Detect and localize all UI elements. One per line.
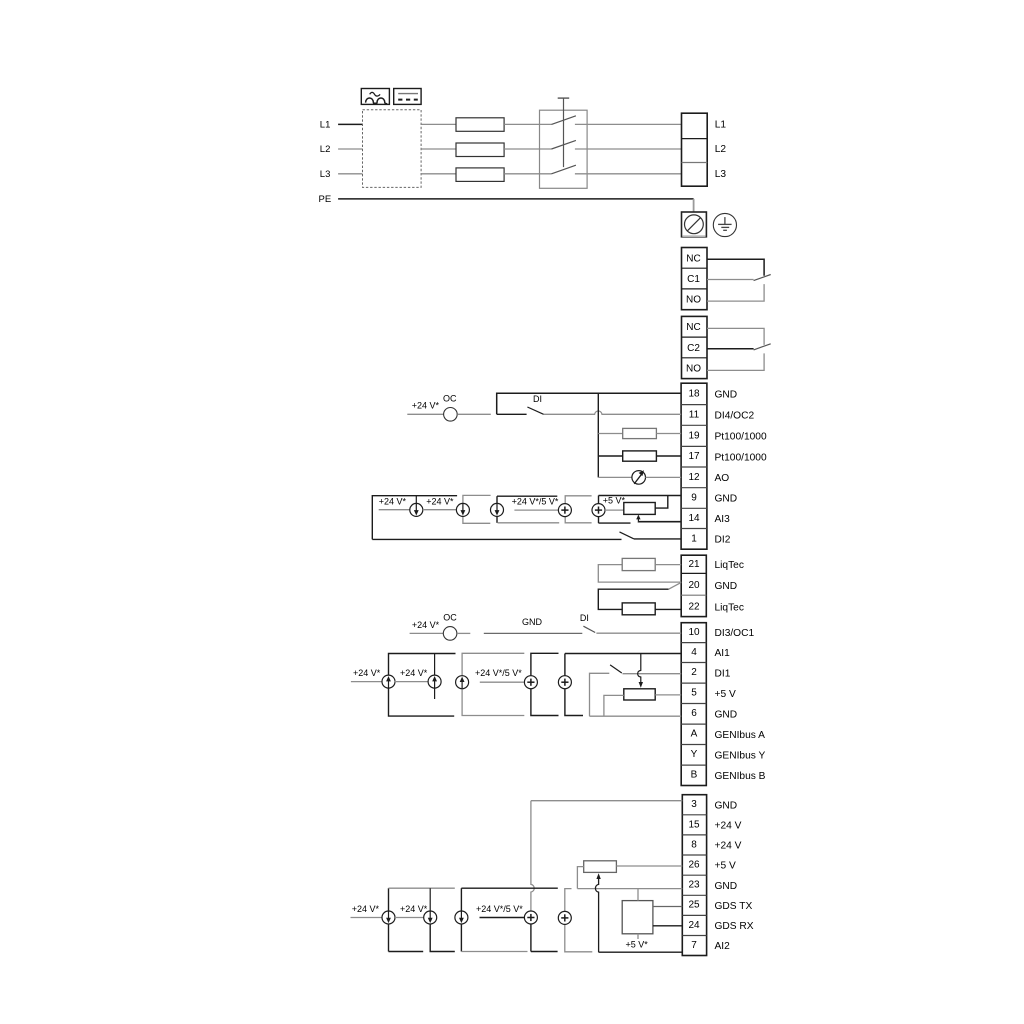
svg-text:+24 V*: +24 V* — [379, 496, 407, 506]
svg-text:A: A — [691, 729, 698, 740]
svg-text:+24 V*: +24 V* — [412, 401, 440, 411]
svg-text:+24 V*: +24 V* — [400, 904, 428, 914]
svg-text:Pt100/1000: Pt100/1000 — [715, 452, 767, 463]
svg-text:GND: GND — [715, 494, 738, 505]
svg-text:GND: GND — [715, 390, 738, 401]
svg-text:L1: L1 — [715, 120, 727, 131]
svg-text:+24 V*/5 V*: +24 V*/5 V* — [512, 497, 559, 507]
svg-text:LiqTec: LiqTec — [715, 560, 744, 571]
svg-text:11: 11 — [689, 409, 700, 420]
svg-text:GENIbus A: GENIbus A — [715, 730, 766, 741]
svg-text:Pt100/1000: Pt100/1000 — [715, 432, 767, 443]
svg-text:26: 26 — [688, 860, 700, 871]
svg-text:19: 19 — [688, 430, 700, 441]
svg-text:GND: GND — [715, 881, 738, 892]
svg-text:2: 2 — [691, 667, 697, 678]
svg-text:1: 1 — [691, 533, 697, 544]
svg-text:B: B — [691, 770, 698, 781]
svg-text:DI3/OC1: DI3/OC1 — [715, 628, 755, 639]
svg-text:DI1: DI1 — [715, 668, 731, 679]
svg-text:L2: L2 — [320, 144, 331, 155]
svg-text:DI4/OC2: DI4/OC2 — [715, 411, 755, 422]
svg-text:L2: L2 — [715, 144, 727, 155]
svg-text:L3: L3 — [715, 169, 727, 180]
svg-text:12: 12 — [688, 472, 700, 483]
svg-text:GDS TX: GDS TX — [715, 901, 753, 912]
svg-text:GENIbus B: GENIbus B — [715, 771, 766, 782]
svg-text:PE: PE — [319, 194, 332, 205]
svg-text:3: 3 — [691, 799, 697, 810]
svg-text:GENIbus Y: GENIbus Y — [715, 750, 766, 761]
svg-text:L3: L3 — [320, 169, 331, 180]
svg-text:+24 V*: +24 V* — [412, 620, 440, 630]
svg-text:5: 5 — [691, 688, 697, 699]
svg-text:14: 14 — [688, 513, 700, 524]
svg-text:22: 22 — [688, 602, 700, 613]
svg-text:LiqTec: LiqTec — [715, 603, 744, 614]
svg-text:GND: GND — [715, 800, 738, 811]
svg-text:NC: NC — [686, 253, 700, 264]
svg-text:18: 18 — [688, 388, 700, 399]
svg-text:+5 V: +5 V — [715, 861, 736, 872]
svg-text:+24 V: +24 V — [715, 821, 742, 832]
svg-text:+24 V*: +24 V* — [352, 904, 380, 914]
svg-text:8: 8 — [691, 839, 697, 850]
svg-text:25: 25 — [688, 900, 700, 911]
svg-text:L1: L1 — [320, 120, 331, 131]
svg-text:AO: AO — [715, 473, 730, 484]
svg-text:AI2: AI2 — [715, 941, 731, 952]
svg-text:DI: DI — [533, 394, 542, 404]
svg-text:+24 V*: +24 V* — [426, 496, 454, 506]
svg-text:AI1: AI1 — [715, 648, 731, 659]
svg-text:+24 V*/5 V*: +24 V*/5 V* — [476, 904, 523, 914]
svg-text:Y: Y — [691, 749, 698, 760]
svg-text:AI3: AI3 — [715, 514, 731, 525]
svg-text:7: 7 — [691, 940, 697, 951]
svg-text:C2: C2 — [687, 343, 700, 354]
svg-text:20: 20 — [688, 580, 700, 591]
svg-text:OC: OC — [443, 393, 457, 403]
svg-text:+5 V*: +5 V* — [603, 496, 626, 506]
svg-text:15: 15 — [688, 819, 700, 830]
svg-text:+24 V*: +24 V* — [353, 668, 381, 678]
svg-text:+5 V: +5 V — [715, 689, 736, 700]
svg-text:+5 V*: +5 V* — [626, 940, 649, 950]
svg-text:+24 V*: +24 V* — [400, 668, 428, 678]
svg-text:23: 23 — [688, 880, 700, 891]
svg-text:OC: OC — [443, 612, 457, 622]
svg-text:6: 6 — [691, 708, 697, 719]
svg-text:+24 V*/5 V*: +24 V*/5 V* — [475, 668, 522, 678]
svg-text:21: 21 — [688, 559, 700, 570]
svg-text:GDS RX: GDS RX — [715, 921, 754, 932]
svg-text:24: 24 — [688, 920, 700, 931]
svg-text:10: 10 — [688, 627, 700, 638]
svg-text:NO: NO — [686, 295, 701, 306]
svg-text:17: 17 — [688, 451, 700, 462]
svg-text:C1: C1 — [687, 274, 700, 285]
svg-text:4: 4 — [691, 647, 697, 658]
svg-text:+24 V: +24 V — [715, 841, 742, 852]
svg-text:GND: GND — [715, 709, 738, 720]
svg-text:DI: DI — [580, 613, 589, 623]
svg-text:NC: NC — [686, 322, 700, 333]
svg-text:NO: NO — [686, 364, 701, 375]
svg-text:GND: GND — [715, 581, 738, 592]
svg-text:GND: GND — [522, 617, 543, 627]
svg-text:9: 9 — [691, 492, 697, 503]
svg-text:DI2: DI2 — [715, 535, 731, 546]
